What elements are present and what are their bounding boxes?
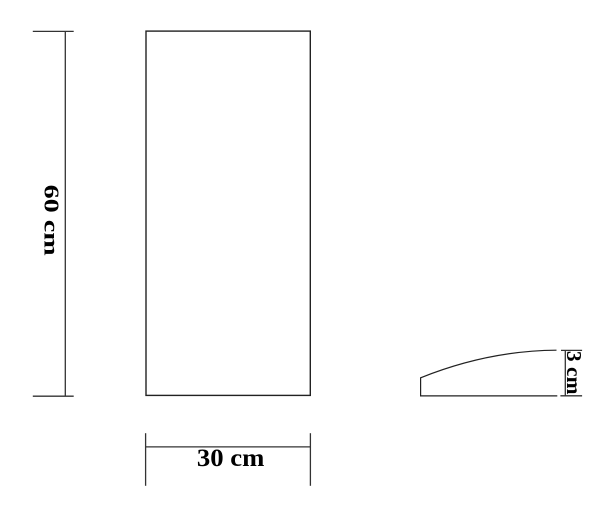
- svg-text:3 cm: 3 cm: [562, 351, 586, 395]
- svg-text:60 cm: 60 cm: [39, 185, 62, 256]
- svg-text:30 cm: 30 cm: [197, 444, 265, 472]
